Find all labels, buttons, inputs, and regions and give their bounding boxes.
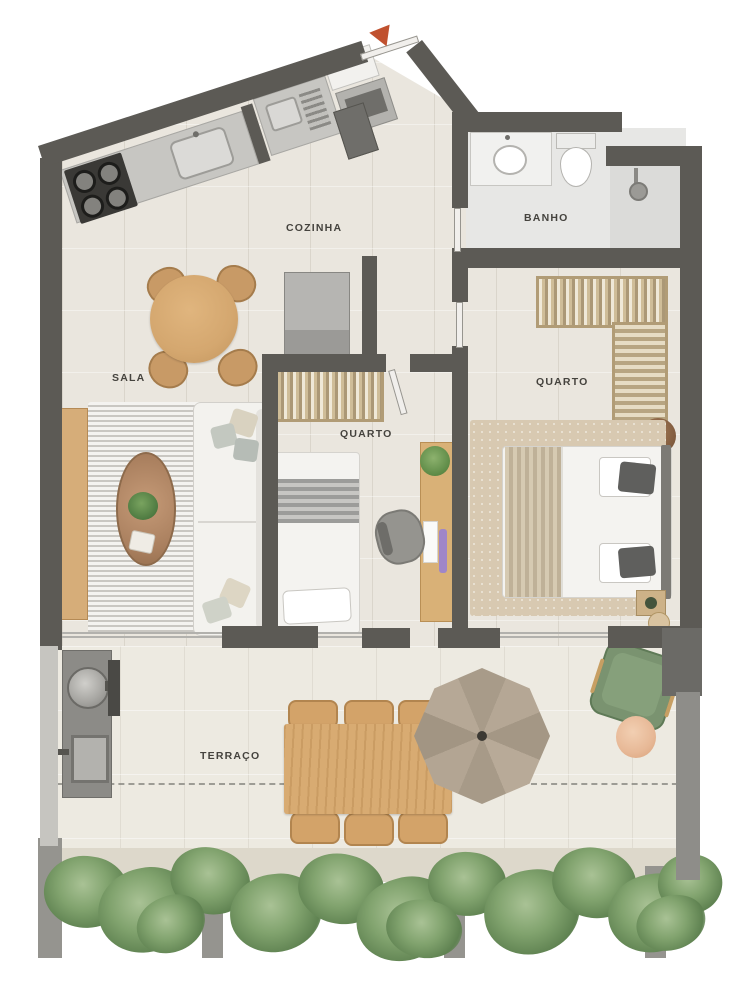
terrace-chair [290,810,340,844]
toilet-bowl [560,147,592,187]
bed-accent-pillow [618,461,657,495]
desk-accessory [439,529,447,573]
exterior-wall-left [40,158,62,646]
bedrooms-divider-lower [452,346,468,646]
grill-side-shelf [108,660,120,716]
fridge [284,272,350,358]
double-bed [502,446,672,598]
floor-plan: COZINHA BANHO SALA QUARTO QUARTO TERRAÇO [0,0,737,1000]
terrace-chair [344,812,394,846]
bathroom-wall-top [456,112,622,132]
window-glass [318,632,364,638]
bedside-lamp-icon [645,597,657,609]
round-dining-table [150,275,238,363]
headboard [661,445,671,599]
burner-icon [70,167,99,196]
burner-icon [95,159,124,188]
burner-icon [78,192,107,221]
terrace-wall-right [676,692,700,880]
room-label-banho: BANHO [524,212,569,224]
bed-fold-line [561,447,563,597]
bed-accent-pillow [618,545,656,578]
cooktop-lines [299,88,332,131]
burner-icon [103,184,132,213]
sala-bedroom-divider [262,354,278,646]
terrace-wall-left [40,646,58,846]
room-label-cozinha: COZINHA [286,222,342,234]
faucet-icon [505,135,510,140]
wall-pier [438,628,500,648]
wardrobe-open [272,368,384,422]
room-label-sala: SALA [112,372,145,384]
washbasin-counter [470,132,552,186]
bed-pillow [282,587,352,625]
sofa-pillow [233,437,260,462]
terrace-wall-right-dark [662,628,702,696]
single-bed [274,452,360,634]
coffee-table-plant [128,492,158,520]
room-label-quarto-1: QUARTO [340,428,393,440]
terrace-pouf [616,716,656,758]
bathroom-wall-left [452,112,468,208]
washbasin [493,145,527,175]
grill-station [62,650,112,798]
parasol [414,668,550,804]
sofa-seat-split [198,521,256,523]
kettle-grill [67,667,109,709]
bathroom-door [454,208,461,252]
sliding-door-glass [60,632,224,638]
wall-pier [222,626,318,648]
outdoor-sink [71,735,109,783]
room-label-quarto-2: QUARTO [536,376,589,388]
desk-plant [420,446,450,476]
wall-pier [362,628,410,648]
exterior-wall-right-main [680,268,702,646]
toilet [556,133,594,187]
terrace-chair [398,810,448,844]
bed-blanket [275,479,359,523]
wardrobe-open [536,276,668,328]
desk-chair-back [376,521,394,556]
room-label-terraco: TERRAÇO [200,750,260,762]
bed-throw [505,447,561,597]
sliding-door-glass [500,632,610,638]
shower-head-icon [629,182,648,201]
lounge-chair-cushion [599,650,669,719]
shower-floor [610,164,684,256]
parasol-pole [477,731,487,741]
kitchen-corridor-wall [362,256,377,372]
bedrooms-divider-upper [452,268,468,302]
bedroom2-door [456,302,463,348]
bathroom-wall-bottom [452,248,702,268]
sofa [193,402,271,636]
prep-sink [264,96,303,133]
